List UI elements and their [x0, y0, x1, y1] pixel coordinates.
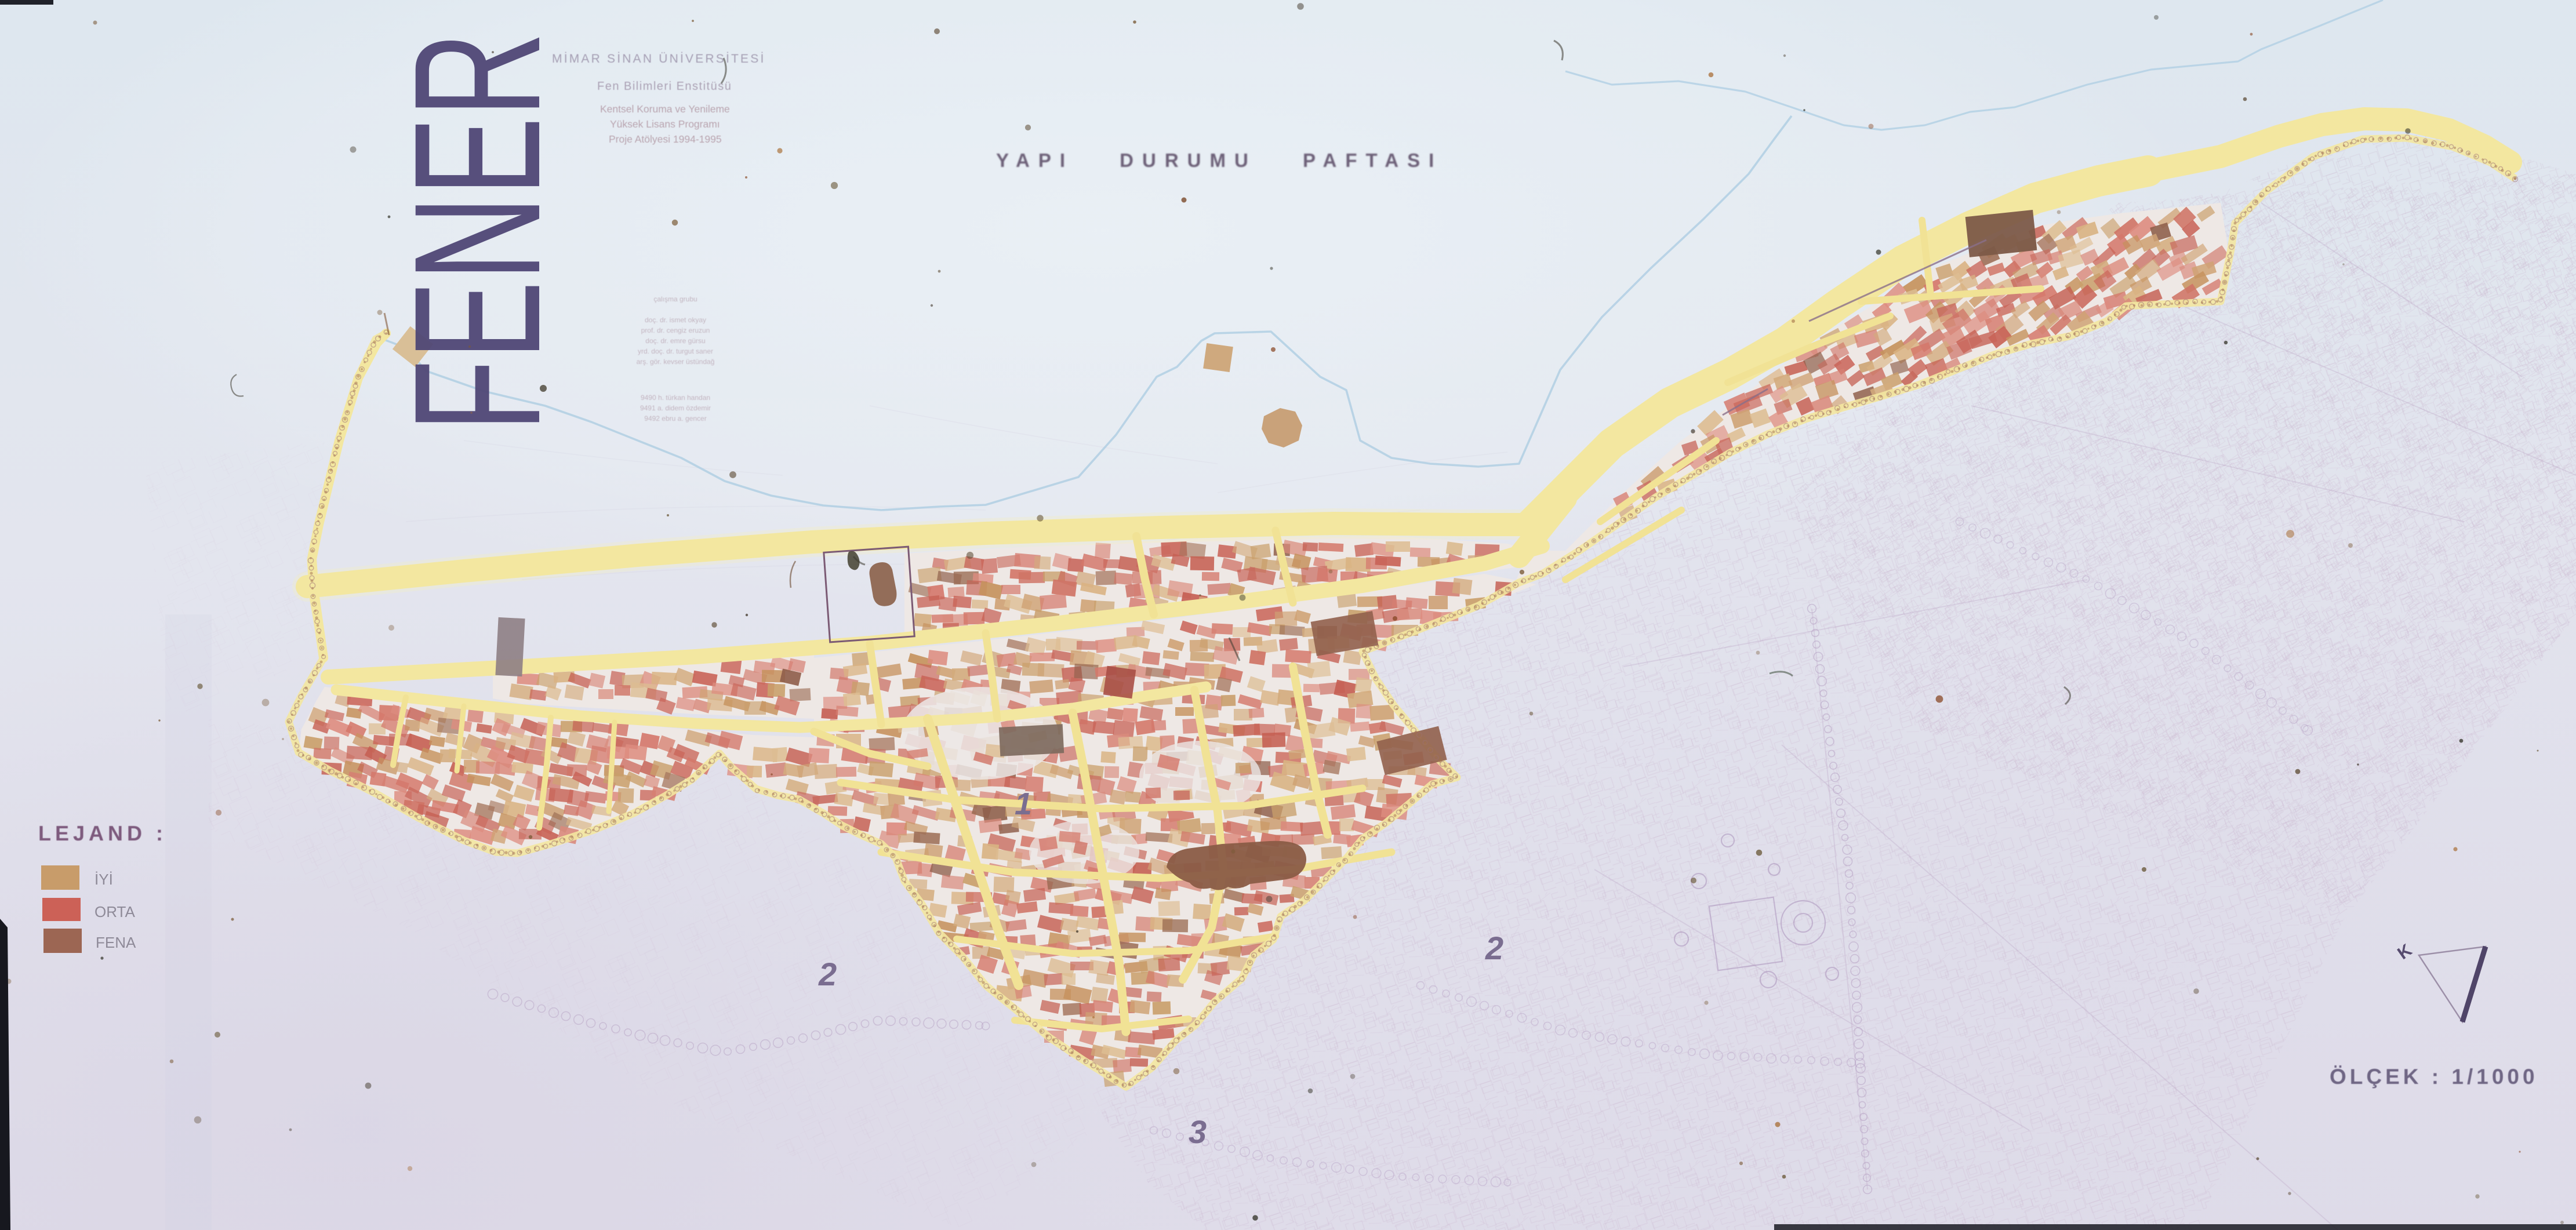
- svg-text:3: 3: [1189, 1113, 1207, 1150]
- svg-text:LEJAND :: LEJAND :: [38, 821, 167, 845]
- svg-text:arş. gör. kevser üstündağ: arş. gör. kevser üstündağ: [637, 358, 715, 366]
- svg-text:FENA: FENA: [96, 934, 136, 951]
- svg-text:doç. dr. ismet okyay: doç. dr. ismet okyay: [645, 316, 706, 324]
- svg-text:ORTA: ORTA: [95, 903, 135, 920]
- svg-text:9491 a. didem özdemir: 9491 a. didem özdemir: [640, 404, 711, 412]
- svg-text:MİMAR SİNAN ÜNİVERSİTESİ: MİMAR SİNAN ÜNİVERSİTESİ: [552, 52, 766, 65]
- svg-text:2: 2: [818, 956, 837, 992]
- svg-text:1: 1: [1015, 787, 1032, 821]
- svg-text:çalışma grubu: çalışma grubu: [653, 295, 697, 303]
- svg-text:prof. dr. cengiz eruzun: prof. dr. cengiz eruzun: [641, 326, 710, 334]
- svg-text:yrd. doç. dr. turgut saner: yrd. doç. dr. turgut saner: [638, 347, 713, 355]
- svg-text:9490 h. türkan handan: 9490 h. türkan handan: [641, 394, 710, 402]
- svg-text:FENER: FENER: [376, 32, 577, 432]
- svg-text:Yüksek Lisans Programı: Yüksek Lisans Programı: [610, 118, 720, 130]
- svg-text:Proje Atölyesi 1994-1995: Proje Atölyesi 1994-1995: [609, 133, 722, 145]
- svg-text:2: 2: [1485, 930, 1503, 966]
- svg-text:Kentsel Koruma ve Yenileme: Kentsel Koruma ve Yenileme: [600, 103, 730, 115]
- svg-text:doç. dr. emre gürsu: doç. dr. emre gürsu: [645, 337, 705, 345]
- svg-text:9492 ebru a. gencer: 9492 ebru a. gencer: [644, 414, 706, 423]
- svg-text:Fen Bilimleri Enstitüsü: Fen Bilimleri Enstitüsü: [597, 80, 732, 93]
- svg-text:YAPI DURUMU PAFTASI: YAPI DURUMU PAFTASI: [996, 150, 1443, 171]
- svg-text:İYİ: İYİ: [95, 871, 113, 888]
- svg-text:ÖLÇEK : 1/1000: ÖLÇEK : 1/1000: [2330, 1065, 2538, 1089]
